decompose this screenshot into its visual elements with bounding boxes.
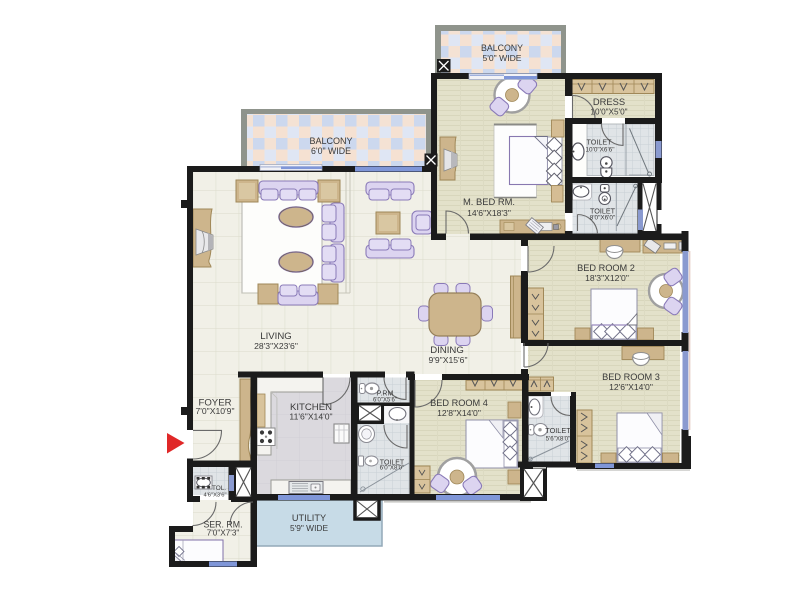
svg-text:UTILITY: UTILITY <box>292 513 326 523</box>
svg-text:7'0"X10'9": 7'0"X10'9" <box>195 406 234 416</box>
svg-text:P.RM: P.RM <box>377 391 394 398</box>
svg-text:BED ROOM 2: BED ROOM 2 <box>577 263 635 273</box>
svg-text:14'6"X18'3": 14'6"X18'3" <box>467 208 511 218</box>
svg-text:10'0"X6'6": 10'0"X6'6" <box>585 147 614 154</box>
svg-text:12'6"X14'0": 12'6"X14'0" <box>609 382 653 392</box>
svg-text:28'3"X23'6": 28'3"X23'6" <box>254 341 298 351</box>
svg-text:9'9"X15'6": 9'9"X15'6" <box>428 355 467 365</box>
svg-text:TOILET: TOILET <box>545 426 571 435</box>
svg-text:4'6"X3'6": 4'6"X3'6" <box>203 493 226 499</box>
svg-text:TOILET: TOILET <box>586 138 612 147</box>
svg-text:6'0" WIDE: 6'0" WIDE <box>311 146 351 156</box>
svg-text:5'0" WIDE: 5'0" WIDE <box>482 53 521 63</box>
svg-text:M. BED RM.: M. BED RM. <box>463 196 515 207</box>
svg-text:BED ROOM 3: BED ROOM 3 <box>602 372 660 382</box>
svg-text:BED ROOM 4: BED ROOM 4 <box>430 398 488 408</box>
svg-text:BALCONY: BALCONY <box>481 43 523 53</box>
svg-text:BALCONY: BALCONY <box>309 136 352 146</box>
svg-text:DRESS: DRESS <box>593 96 625 107</box>
svg-text:12'8"X14'0": 12'8"X14'0" <box>437 408 481 418</box>
svg-text:8'0"X6'0": 8'0"X6'0" <box>590 215 615 222</box>
svg-text:7'0"X7'3": 7'0"X7'3" <box>207 529 240 538</box>
svg-text:TOL.: TOL. <box>212 485 226 492</box>
svg-text:10'0"X5'0": 10'0"X5'0" <box>590 108 627 117</box>
svg-text:6'0"X5'6": 6'0"X5'6" <box>373 398 397 404</box>
svg-text:5'6"X8'0": 5'6"X8'0" <box>546 436 571 443</box>
svg-text:18'3"X12'0": 18'3"X12'0" <box>585 273 629 283</box>
svg-text:5'9" WIDE: 5'9" WIDE <box>290 523 328 533</box>
svg-text:11'6"X14'0": 11'6"X14'0" <box>289 412 332 422</box>
svg-text:6'0"X8'0": 6'0"X8'0" <box>380 465 405 472</box>
